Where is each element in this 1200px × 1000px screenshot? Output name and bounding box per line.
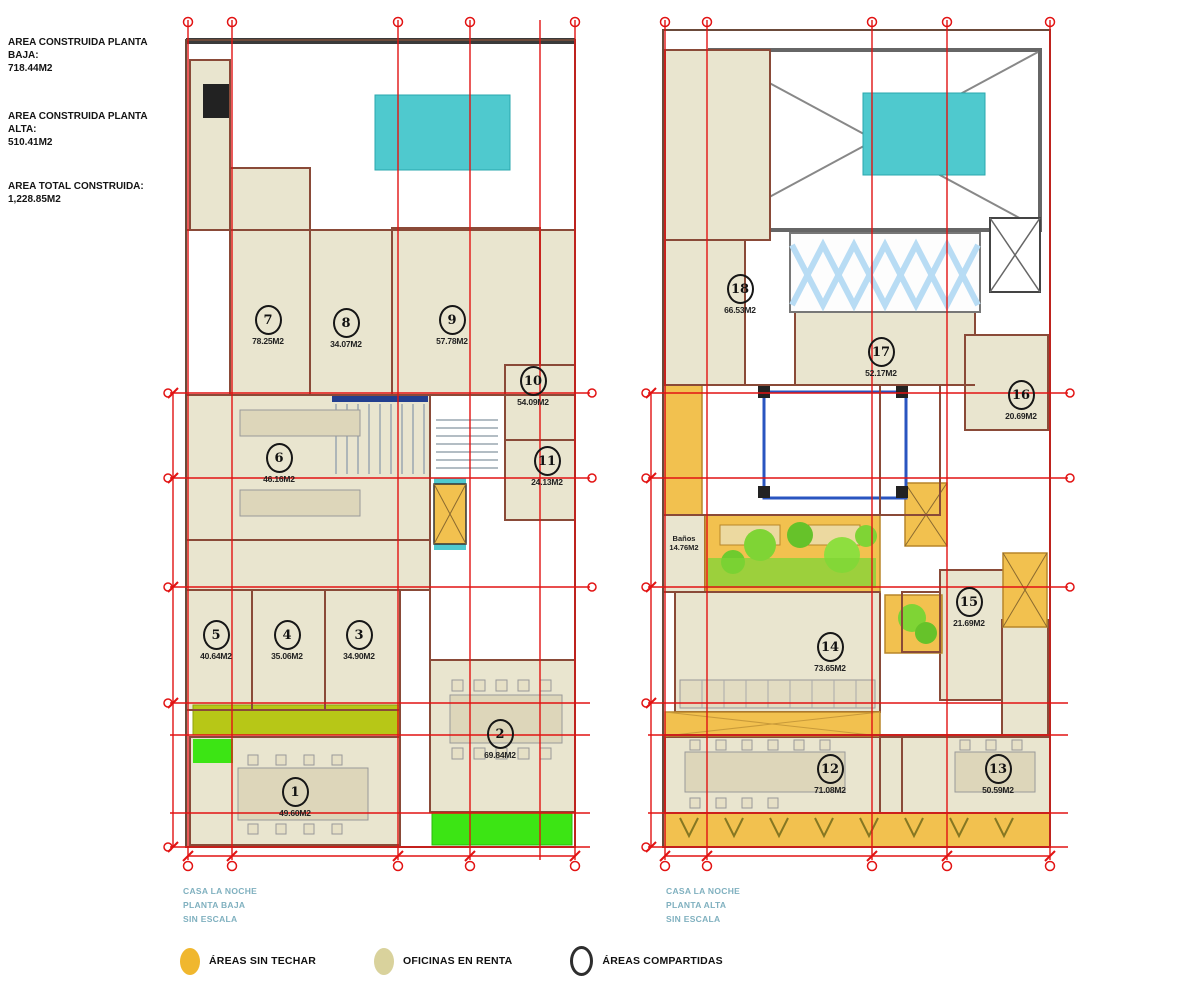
orange-circle-icon bbox=[180, 948, 200, 975]
caption-line: CASA LA NOCHE bbox=[666, 884, 740, 898]
legend-label: ÁREAS COMPARTIDAS bbox=[602, 955, 722, 967]
legend-label: OFICINAS EN RENTA bbox=[403, 955, 512, 967]
banos-label: Baños 14.76M2 bbox=[658, 534, 710, 552]
legend-item-oficinas-en-renta: OFICINAS EN RENTA bbox=[374, 948, 512, 975]
outlined-circle-icon bbox=[570, 946, 593, 976]
caption-line: PLANTA ALTA bbox=[666, 898, 740, 912]
planta-baja-drawing bbox=[186, 38, 575, 847]
caption-line: PLANTA BAJA bbox=[183, 898, 257, 912]
caption-line: SIN ESCALA bbox=[666, 912, 740, 926]
beige-circle-icon bbox=[374, 948, 394, 975]
legend-label: ÁREAS SIN TECHAR bbox=[209, 955, 316, 967]
legend: ÁREAS SIN TECHAR OFICINAS EN RENTA ÁREAS… bbox=[180, 946, 723, 976]
planta-baja-caption: CASA LA NOCHE PLANTA BAJA SIN ESCALA bbox=[183, 884, 257, 926]
caption-line: SIN ESCALA bbox=[183, 912, 257, 926]
planta-alta-drawing bbox=[663, 30, 1050, 847]
legend-item-areas-compartidas: ÁREAS COMPARTIDAS bbox=[570, 946, 722, 976]
banos-area: 14.76M2 bbox=[658, 543, 710, 552]
banos-name: Baños bbox=[658, 534, 710, 543]
floorplan-sheet: AREA CONSTRUIDA PLANTA BAJA: 718.44M2 AR… bbox=[0, 0, 1200, 1000]
planta-alta-caption: CASA LA NOCHE PLANTA ALTA SIN ESCALA bbox=[666, 884, 740, 926]
floorplan-drawing bbox=[0, 0, 1200, 1000]
caption-line: CASA LA NOCHE bbox=[183, 884, 257, 898]
legend-item-areas-sin-techar: ÁREAS SIN TECHAR bbox=[180, 948, 316, 975]
